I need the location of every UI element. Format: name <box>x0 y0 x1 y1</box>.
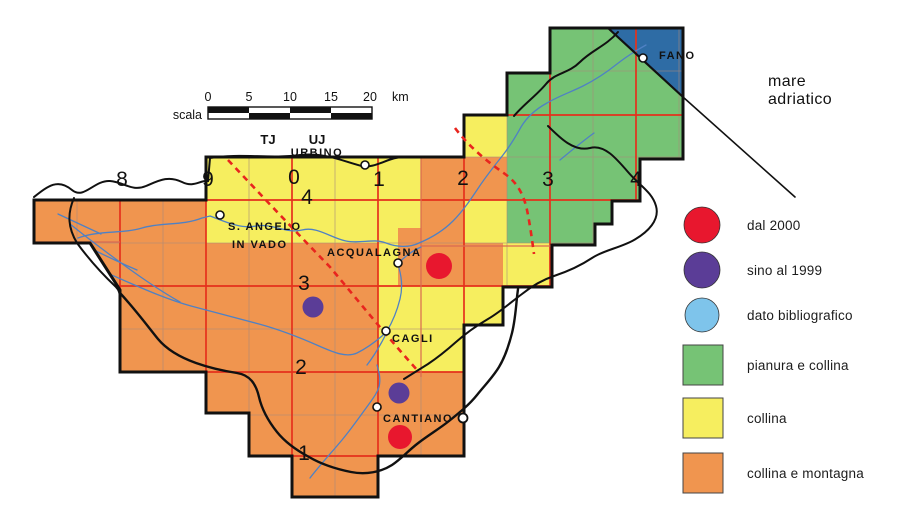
legend-label-dal-2000: dal 2000 <box>747 218 800 233</box>
sea-label: mare adriatico <box>768 73 832 108</box>
town-label-cagli: CAGLI <box>392 333 434 345</box>
legend-label-pianura-e-collina: pianura e collina <box>747 358 849 373</box>
town-label-fano: FANO <box>659 50 696 62</box>
legend-square-yellow <box>683 398 723 438</box>
grid-col-0: 0 <box>288 166 300 189</box>
town-dot-cagli <box>382 327 390 335</box>
town-dot-edge <box>459 414 468 423</box>
grid-col-2: 2 <box>457 167 469 190</box>
legend-label-dato-bibliografico: dato bibliografico <box>747 308 853 323</box>
scale-tick-5: 5 <box>246 90 253 104</box>
town-label-sangelo-2: IN VADO <box>232 239 288 251</box>
scale-tick-10: 10 <box>283 90 297 104</box>
utm-zone-tj: TJ <box>260 132 275 147</box>
cells-collina-notch <box>464 115 507 157</box>
legend-item-sino-al-1999: sino al 1999 <box>684 252 822 288</box>
town-label-sangelo-1: S. ANGELO <box>228 221 302 233</box>
scale-tick-0: 0 <box>205 90 212 104</box>
legend-circle-purple <box>684 252 720 288</box>
town-dot-sangelo <box>216 211 224 219</box>
record-dot-cagli-purple <box>303 297 324 318</box>
scale-tick-15: 15 <box>324 90 338 104</box>
legend-circle-red <box>684 207 720 243</box>
legend-circle-blue <box>685 298 719 332</box>
cells-collina-mid <box>464 200 507 243</box>
town-dot-urbino <box>361 161 369 169</box>
town-label-acqualagna: ACQUALAGNA <box>327 247 421 259</box>
scale-bar: scala 0 5 10 15 20 km TJ UJ <box>173 90 409 147</box>
grid-col-3: 3 <box>542 168 554 191</box>
utm-zone-uj: UJ <box>309 132 326 147</box>
record-dot-cantiano-purple <box>389 383 410 404</box>
legend-item-dal-2000: dal 2000 <box>684 207 800 243</box>
coastline-south <box>683 97 795 197</box>
grid-row-2: 2 <box>295 356 307 379</box>
town-label-urbino: URBINO <box>291 147 343 159</box>
sea-label-line1: mare <box>768 73 806 90</box>
legend-label-sino-al-1999: sino al 1999 <box>747 263 822 278</box>
grid-row-4: 4 <box>301 186 313 209</box>
grid-col-8: 8 <box>116 168 128 191</box>
cells-collina-cagli-e <box>464 286 503 326</box>
legend: dal 2000 sino al 1999 dato bibliografico… <box>683 207 864 493</box>
grid-col-1: 1 <box>373 168 385 191</box>
legend-item-dato-bibliografico: dato bibliografico <box>685 298 853 332</box>
town-label-cantiano: CANTIANO <box>383 413 453 425</box>
legend-label-collina: collina <box>747 411 787 426</box>
scale-caption: scala <box>173 108 202 122</box>
grid-col-9: 9 <box>202 168 214 191</box>
distribution-map-page: URBINO S. ANGELO IN VADO ACQUALAGNA CAGL… <box>0 0 900 530</box>
grid-row-1: 1 <box>298 442 310 465</box>
grid-row-3: 3 <box>298 272 310 295</box>
town-dot-fano <box>639 54 647 62</box>
record-dot-cantiano-red <box>388 425 412 449</box>
legend-item-collina-e-montagna: collina e montagna <box>683 453 864 493</box>
legend-item-pianura-e-collina: pianura e collina <box>683 345 849 385</box>
map-svg: URBINO S. ANGELO IN VADO ACQUALAGNA CAGL… <box>0 0 900 530</box>
legend-square-green <box>683 345 723 385</box>
sea-label-line2: adriatico <box>768 91 832 108</box>
scale-tick-20: 20 <box>363 90 377 104</box>
town-dot-cantiano <box>373 403 381 411</box>
town-dot-acqualagna <box>394 259 402 267</box>
record-dot-acqualagna-red <box>426 253 452 279</box>
legend-label-collina-e-montagna: collina e montagna <box>747 466 864 481</box>
scale-unit: km <box>392 90 409 104</box>
legend-item-collina: collina <box>683 398 787 438</box>
grid-col-4: 4 <box>630 168 642 191</box>
habitat-cells <box>34 28 683 500</box>
legend-square-orange <box>683 453 723 493</box>
